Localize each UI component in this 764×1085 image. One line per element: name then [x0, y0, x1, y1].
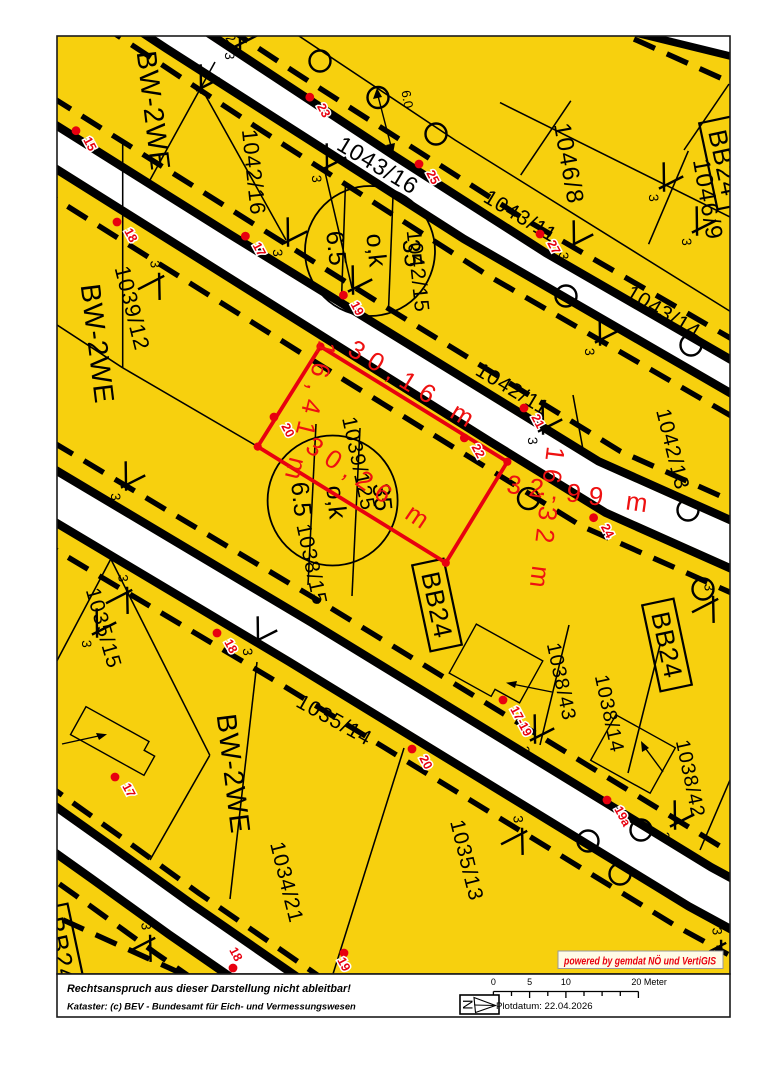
svg-text:3: 3: [222, 51, 238, 60]
svg-text:Plotdatum: 22.04.2026: Plotdatum: 22.04.2026: [496, 1001, 593, 1012]
svg-text:3: 3: [709, 927, 725, 936]
svg-text:Rechtsanspruch aus dieser Dars: Rechtsanspruch aus dieser Darstellung ni…: [67, 983, 351, 995]
svg-text:3: 3: [510, 815, 526, 824]
svg-text:10: 10: [561, 977, 571, 987]
svg-text:3: 3: [582, 347, 598, 356]
svg-text:3: 3: [525, 436, 541, 445]
svg-text:3: 3: [657, 831, 673, 840]
svg-text:3: 3: [115, 574, 131, 583]
svg-text:6.0: 6.0: [398, 89, 416, 109]
svg-text:5: 5: [527, 977, 532, 987]
svg-text:3: 3: [108, 492, 124, 501]
svg-text:3: 3: [147, 260, 163, 269]
svg-text:powered by gemdat NÖ und Verti: powered by gemdat NÖ und VertiGIS: [563, 955, 716, 968]
svg-text:Kataster: (c) BEV - Bundesamt: Kataster: (c) BEV - Bundesamt für Eich- …: [67, 1001, 356, 1012]
svg-text:o,k: o,k: [360, 232, 391, 269]
svg-text:3: 3: [679, 237, 695, 246]
svg-text:3: 3: [517, 745, 533, 754]
svg-text:3: 3: [79, 639, 95, 648]
svg-text:3: 3: [701, 583, 717, 592]
svg-text:3: 3: [309, 174, 325, 183]
svg-text:0: 0: [491, 977, 496, 987]
svg-text:20 Meter: 20 Meter: [631, 977, 667, 987]
svg-text:6.5: 6.5: [320, 229, 351, 267]
svg-text:3: 3: [138, 922, 154, 931]
svg-text:3: 3: [270, 248, 286, 257]
svg-text:N: N: [460, 999, 476, 1009]
svg-text:3: 3: [646, 193, 662, 202]
svg-text:3: 3: [240, 647, 256, 656]
